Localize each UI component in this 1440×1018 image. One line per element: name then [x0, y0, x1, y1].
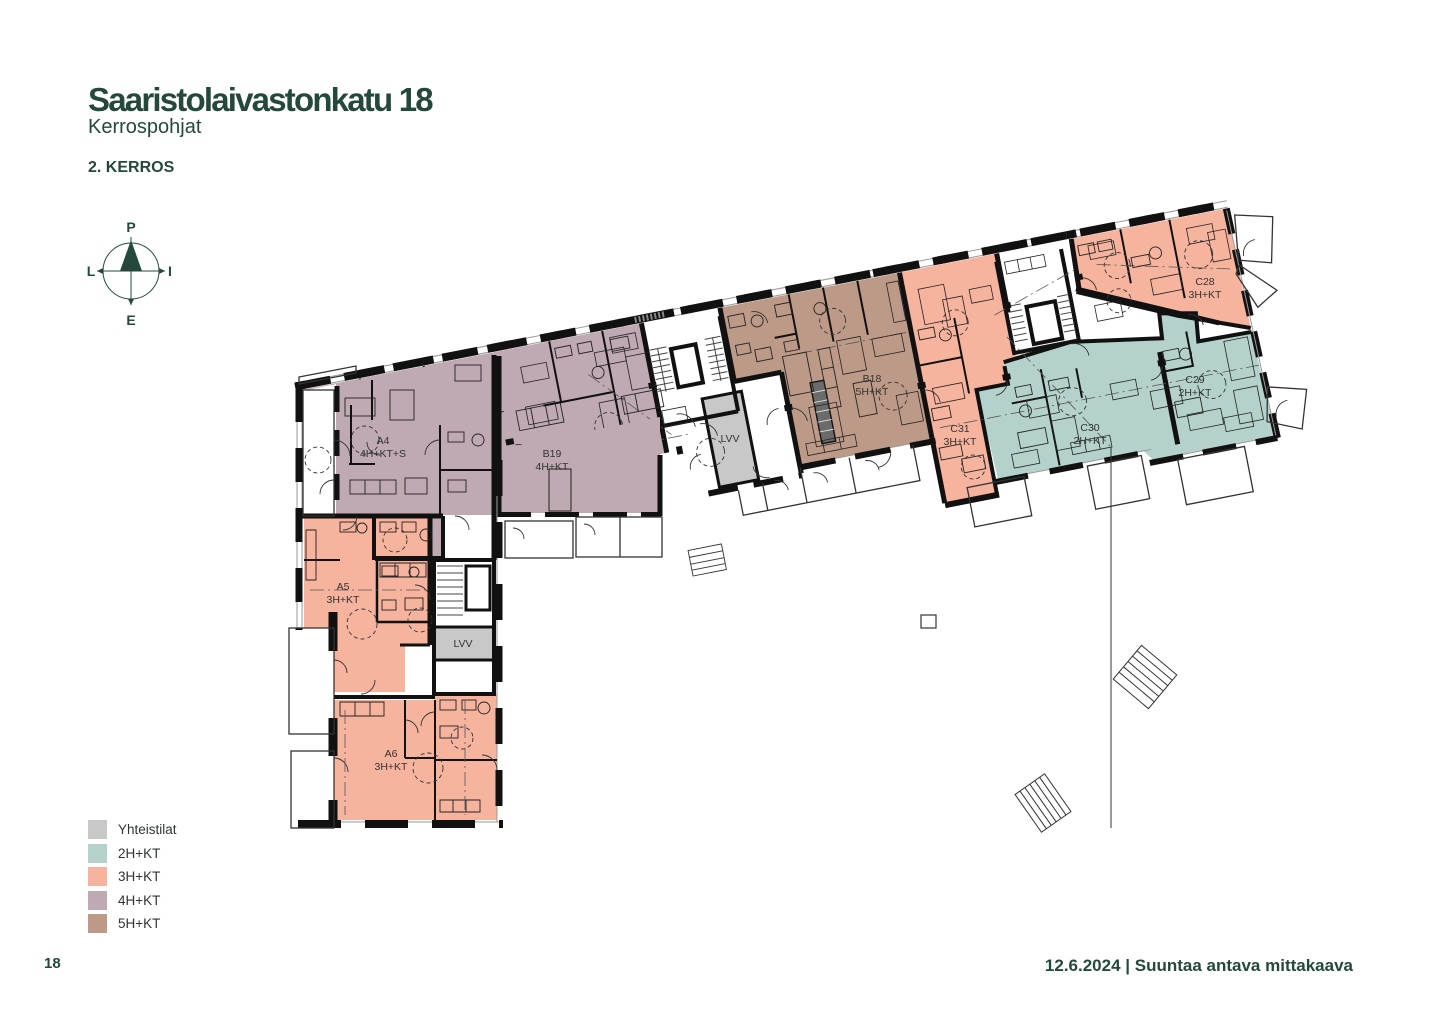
svg-text:A6: A6	[385, 748, 398, 760]
svg-text:A5: A5	[337, 581, 350, 593]
svg-text:5H+KT: 5H+KT	[856, 386, 890, 398]
svg-text:C29: C29	[1185, 374, 1204, 386]
svg-text:4H+KT: 4H+KT	[536, 461, 570, 473]
svg-text:3H+KT: 3H+KT	[327, 594, 361, 606]
svg-text:B19: B19	[543, 448, 562, 460]
svg-text:P: P	[126, 219, 135, 235]
svg-text:I: I	[168, 263, 172, 279]
svg-text:3H+KT: 3H+KT	[1189, 289, 1223, 301]
svg-text:C28: C28	[1195, 276, 1214, 288]
svg-text:3H+KT: 3H+KT	[375, 761, 409, 773]
svg-text:LVV: LVV	[453, 638, 472, 650]
svg-text:L: L	[87, 263, 96, 279]
svg-text:2H+KT: 2H+KT	[1179, 387, 1213, 399]
svg-text:LVV: LVV	[720, 433, 739, 445]
svg-text:C30: C30	[1080, 422, 1099, 434]
svg-text:C31: C31	[950, 423, 969, 435]
svg-text:4H+KT+S: 4H+KT+S	[360, 448, 406, 460]
svg-text:3H+KT: 3H+KT	[944, 436, 978, 448]
svg-text:B18: B18	[863, 373, 882, 385]
svg-text:E: E	[126, 312, 135, 328]
svg-text:2H+KT: 2H+KT	[1074, 435, 1108, 447]
svg-text:A4: A4	[377, 435, 390, 447]
